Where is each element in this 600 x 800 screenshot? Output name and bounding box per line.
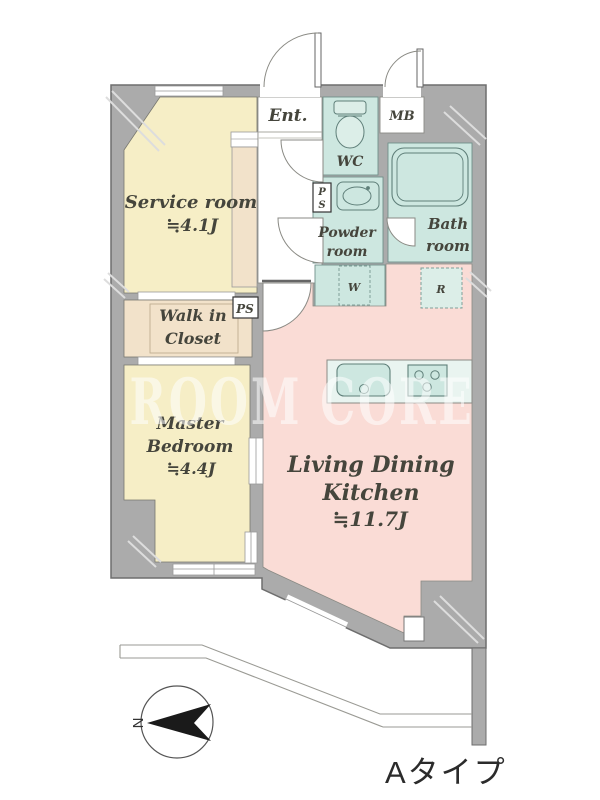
svg-text:P: P — [317, 187, 326, 198]
closet-door-track — [231, 132, 258, 147]
entrance-label: Ent. — [267, 106, 307, 126]
ldk-size: ≒11.7J — [333, 507, 409, 531]
washer-label: W — [348, 281, 362, 294]
plan-type-label: Aタイプ — [385, 755, 507, 790]
window-bedroom-south — [173, 564, 255, 575]
bath-label-1: Bath — [427, 215, 468, 233]
powder-label-2: room — [327, 244, 368, 260]
service-room-size: ≒4.1J — [166, 216, 219, 236]
watermark: ROOM CORE — [130, 365, 475, 440]
mb-door-leaf — [417, 49, 423, 87]
bath-label-2: room — [426, 237, 470, 255]
service-room-label: Service room — [125, 192, 257, 213]
pipe-space-box-2: P S — [313, 183, 331, 212]
powder-label-1: Powder — [317, 225, 377, 241]
svg-text:S: S — [318, 200, 325, 211]
wic-label-1: Walk in — [159, 306, 226, 325]
mb-door-arc — [385, 51, 421, 87]
floor-plan-page: PS P S Ent. MB WC Service room ≒4.1J Wal… — [0, 0, 600, 800]
svg-text:PS: PS — [235, 302, 254, 316]
bedroom-size: ≒4.4J — [167, 459, 217, 478]
wic-label-2: Closet — [165, 329, 222, 348]
wic-sliding-door-top — [138, 292, 235, 300]
window-ldk-corner — [404, 617, 424, 641]
window-bedroom-corner — [245, 532, 257, 563]
toilet-icon — [334, 101, 366, 148]
pipe-space-box: PS — [233, 297, 258, 318]
mb-opening — [383, 84, 421, 97]
floor-plan-drawing: PS P S Ent. MB WC Service room ≒4.1J Wal… — [0, 0, 600, 800]
window-service-room — [155, 86, 223, 96]
entrance-opening — [260, 84, 320, 97]
ldk-label-1: Living Dining — [286, 452, 454, 478]
meter-box-label: MB — [388, 109, 414, 124]
wc-label: WC — [337, 154, 364, 170]
entrance-door-arc — [264, 33, 318, 87]
compass: N — [130, 686, 213, 758]
service-room-closet — [232, 147, 257, 287]
ldk-label-2: Kitchen — [321, 480, 419, 506]
compass-north-label: N — [130, 718, 147, 729]
bedroom-label-2: Bedroom — [146, 437, 234, 457]
entrance-door-leaf — [315, 33, 321, 87]
balcony-side-wall — [472, 648, 486, 745]
refrigerator-label: R — [435, 283, 445, 296]
wic-sliding-door-bottom — [138, 357, 235, 365]
